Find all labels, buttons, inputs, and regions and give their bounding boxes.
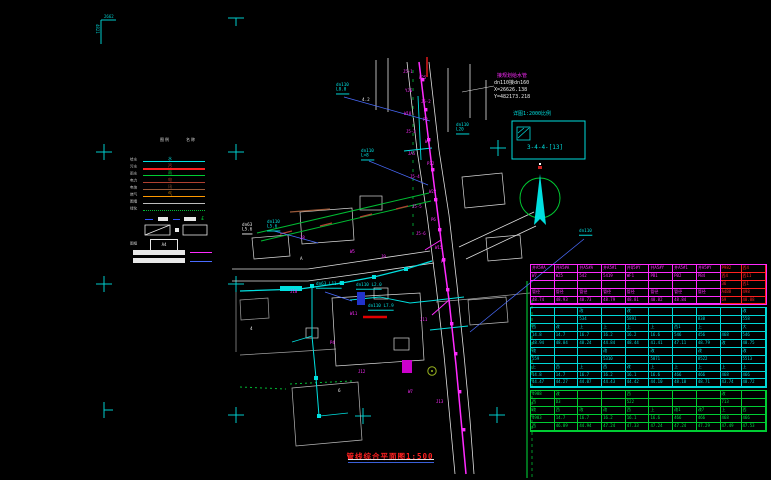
table-cell: 46.89 [555,423,579,431]
node-label: W22 [429,190,436,194]
pipe-label: 4.2 [362,99,370,104]
table-cell: 16.2 [602,372,626,380]
table-cell [602,308,626,316]
table-cell: 西 [555,364,579,372]
table-cell: 西1 [742,281,766,289]
table-cell [649,399,673,407]
table-cell: 井A5#A [531,265,555,273]
table-cell: PB1 [649,273,673,281]
node-label: J9 [381,255,386,259]
node-label: J10 [290,290,297,294]
legend-row-label: 污水 [130,164,137,169]
table-cell [578,391,602,399]
table-cell [555,348,579,356]
node-label: P8 [423,118,428,122]
coordinate-x-note: X=26626.138 [494,87,527,94]
node-label: J5-4 [410,175,420,179]
table-cell: 上 [626,324,650,332]
table-cell: 改 [531,407,555,415]
table-cell: 井A5#Y [697,265,721,273]
table-cell: 西4 [742,265,766,273]
table-cell: 改 [721,391,742,399]
road-bar-2 [133,258,185,263]
table-section-existing: 改改改5345891838558西改上上上上西1上大14.814.716.716… [530,307,767,388]
table-row: 井A5#A井A5#A井A5#A井A5#1井Q5#Y井A5#Y井A5#1井A5#Y… [531,265,766,273]
table-cell: 468 [721,415,742,423]
table-cell: 改 [578,407,602,415]
legend-row-label: 电力 [130,178,137,183]
table-cell: 48.84 [673,297,697,305]
table-cell: 改 [578,308,602,316]
table-cell: 16.1 [626,372,650,380]
corner-coordinate-v: 4821 [95,24,100,34]
table-cell: 16.7 [578,372,602,380]
table-cell [697,297,721,305]
table-cell [721,348,742,356]
table-cell: 4988 [531,391,555,399]
table-cell: 西1 [673,324,697,332]
hydrant-symbol [158,217,168,221]
legend-row-围墙: 围墙 [128,201,228,208]
table-row: 改西改改西上改1改7上西 [531,407,766,415]
legend-row-label: 围墙 [130,199,137,204]
table-cell: 管径 [626,289,650,297]
table-cell: 498 [742,289,766,297]
table-cell: 542 [578,273,602,281]
table-cell: 改 [555,391,579,399]
table-row: 上西上西改上上上上上 [531,364,766,372]
table-cell: W7 [531,273,555,281]
table-cell [531,316,555,324]
table-cell [742,391,766,399]
table-cell [673,399,697,407]
table-cell: 改 [626,364,650,372]
table-cell: 改 [697,348,721,356]
table-cell [578,356,602,364]
table-cell: 48.93 [555,297,579,305]
table-cell: 上 [649,407,673,415]
cad-viewport[interactable]: 2662 4821 接规划给水管 dn110接dn160 X=26626.138… [0,0,771,480]
table-cell: 48.71 [697,379,721,387]
table-cell [721,324,742,332]
table-cell: 48.24 [578,340,602,348]
table-cell: 47.24 [602,423,626,431]
table-cell: 44.94 [578,423,602,431]
table-cell: 48.74 [531,297,555,305]
table-cell: 14.8 [531,332,555,340]
table-cell: 上 [742,364,766,372]
table-cell: 838 [697,316,721,324]
node-label: YJ6 [405,89,412,93]
table-cell [649,308,673,316]
table-cell: 西 [602,364,626,372]
table-cell: 16.1 [626,415,650,423]
node-label: J5-3 [406,130,416,134]
table-cell: 西4 [721,273,742,281]
table-cell [673,281,697,289]
node-label: J11 [420,318,427,322]
table-cell [602,316,626,324]
table-cell: 16.6 [649,372,673,380]
table-row: 44.4744.2744.0744.4344.4244.1048.1048.71… [531,379,766,387]
table-cell: W25 [555,273,579,281]
table-row: W7W255425419WF1PB1PB2PB4西4西11 [531,273,766,281]
table-cell: 西 [531,324,555,332]
legend-row-mark: 水 [168,156,172,162]
table-cell: 48.84 [555,340,579,348]
legend-row-污水: 污水污 [128,166,228,173]
legend-header-2: 名称 [186,137,196,143]
pipe-label: dn110 [579,230,592,236]
table-cell: 井Q5#Y [626,265,650,273]
table-cell: 改 [602,407,626,415]
table-cell: 管径 [649,289,673,297]
table-cell: 井A5#Y [649,265,673,273]
table-cell [626,348,650,356]
table-cell [673,391,697,399]
table-cell: 48.88 [742,297,766,305]
table-cell: 西11 [742,273,766,281]
table-cell: 48.81 [626,297,650,305]
table-cell: 上 [531,364,555,372]
table-cell: 468 [721,332,742,340]
node-label: J5-6 [416,232,426,236]
table-cell: 466 [697,415,721,423]
table-cell [602,281,626,289]
table-cell: 上 [578,324,602,332]
table-cell: 16.7 [578,415,602,423]
road-lines [232,58,536,474]
table-cell: 5871 [649,356,673,364]
table-cell: 466 [673,372,697,380]
table-cell: 改 [742,308,766,316]
table-cell: 558 [742,316,766,324]
corner-coordinate-h: 2662 [104,14,114,19]
legend-row-label: 给水 [130,157,137,162]
table-cell: 16.6 [649,415,673,423]
magenta-sample-line [190,252,212,253]
table-cell: 47.49 [721,423,742,431]
table-cell: 44.43 [602,379,626,387]
title-block: 管线综合平面图1:500 [300,444,480,463]
detail-box [512,121,585,159]
legend-row-line [143,210,205,211]
table-cell: 47.29 [697,423,721,431]
table-cell: 大 [742,324,766,332]
table-cell: 5419 [602,273,626,281]
table-cell: 559 [531,356,555,364]
pipe-label: dn110 L5.6 [267,221,280,231]
table-cell [555,281,579,289]
legend-boxes-row [128,223,228,236]
legend-row-line [143,196,205,197]
table-cell: 井A5#A [555,265,579,273]
table-cell: 改 [531,348,555,356]
table-cell: 48.82 [649,297,673,305]
frame-label: 图框 [130,241,137,246]
legend-header-1: 图例 [160,137,170,143]
table-cell: 上 [697,324,721,332]
node-label: P4 [330,341,335,345]
table-cell: 44.10 [649,379,673,387]
node-label: W7 [408,390,413,394]
node-label: W9 [425,140,430,144]
road-bar-1 [133,250,185,255]
table-row: 48.9448.8448.2444.8448.4441.4147.1148.79… [531,340,766,348]
pipe-label: 6 [338,390,341,395]
legend-row-电信: 电信讯 [128,187,228,194]
table-cell: 48.73 [578,297,602,305]
pipeline-data-table: 井A5#A井A5#A井A5#A井A5#1井Q5#Y井A5#Y井A5#1井A5#Y… [530,264,767,434]
legend-row-绿化: 绿化 [128,208,228,215]
legend-row-mark: 雨 [168,170,172,176]
node-label: P7 [441,260,446,264]
planning-note: 接规划给水管 [497,73,527,80]
table-cell: 14.7 [555,415,579,423]
table-cell [602,391,626,399]
table-row: 5595310587185225513 [531,356,766,364]
table-cell: 5891 [626,316,650,324]
table-cell: 466 [697,372,721,380]
table-cell: 西 [531,423,555,431]
table-cell: 48.72 [742,379,766,387]
table-cell: 48.10 [673,379,697,387]
table-cell: 西 [626,407,650,415]
table-cell: 管径 [555,289,579,297]
table-row: 西46.8944.9447.2447.3347.2447.2447.2947.4… [531,423,766,431]
table-cell: 522 [626,399,650,407]
table-cell: 14.8 [531,372,555,380]
table-cell: 8522 [697,356,721,364]
pipe-label: dn63 L11.5 [316,283,342,289]
table-cell [578,399,602,407]
table-cell [721,316,742,324]
table-row: 48.7448.9348.7348.7948.8148.8248.846948.… [531,297,766,305]
node-label: W18 [404,112,411,116]
table-cell: 16.6 [649,332,673,340]
table-cell: 36 [721,281,742,289]
table-cell: 改 [649,348,673,356]
legend-row-mark: 气 [168,191,172,197]
pipe-label: dn63 L5.6 [242,224,252,234]
node-label: W25 [419,76,426,80]
node-label: W11 [350,312,357,316]
table-cell: 改 [742,348,766,356]
detail-caption: 详图1:2000比例 [513,111,551,118]
table-row: 管径管径管径管径管径管径管径管径A4B8498 [531,289,766,297]
table-cell: 44.84 [602,340,626,348]
table-cell: 546 [673,332,697,340]
table-cell [555,316,579,324]
table-cell [742,399,766,407]
table-cell: 井A5#1 [602,265,626,273]
table-cell: 47.53 [742,423,766,431]
legend-row-电力: 电力电 [128,180,228,187]
table-row: 36西1 [531,281,766,289]
table-cell [555,308,579,316]
table-cell: 改 [602,348,626,356]
legend-row-line [143,175,205,176]
valve-symbol-2 [173,219,180,220]
pipe-label: dn110 L7.9 [368,305,394,311]
table-cell [673,316,697,324]
table-cell [578,281,602,289]
utility-hatches [280,206,408,234]
table-cell: 468 [721,372,742,380]
table-cell: PB4 [697,273,721,281]
table-cell: 48.79 [697,340,721,348]
table-cell [602,399,626,407]
table-cell: 改1 [673,407,697,415]
table-cell: 48.75 [742,340,766,348]
table-cell: 西 [531,399,555,407]
table-cell: 上 [602,324,626,332]
table-cell: 16.2 [602,332,626,340]
table-cell: 5513 [742,356,766,364]
table-row: 西D3522713 [531,399,766,407]
pipe-label: dn110 L20 [456,124,469,134]
table-cell: 43.74 [721,379,742,387]
table-cell: 上 [697,364,721,372]
node-label: P6 [431,218,436,222]
pipe-label: dn110 L8.0 [336,84,349,94]
table-cell: 41.41 [649,340,673,348]
node-label: JA5 [408,152,415,156]
table-row: 4988改西改 [531,391,766,399]
table-cell: 48.79 [602,297,626,305]
table-cell [578,348,602,356]
tree-symbol: £ [201,216,204,222]
title-underline-2 [348,462,434,463]
pipe-size-note: dn110接dn160 [494,80,529,87]
table-cell: 466 [742,372,766,380]
legend-row-雨水: 雨水雨 [128,173,228,180]
legend-row-mark: 电 [168,177,172,183]
detail-ref-label: 3-4-4-[13] [527,145,563,152]
title-underline-1 [348,459,434,460]
table-row: 改改改改改 [531,348,766,356]
table-row: 西改上上上上西1上大 [531,324,766,332]
legend-row-line [143,161,205,162]
node-label: J5-1 [403,70,413,74]
legend-row-label: 雨水 [130,171,137,176]
table-cell [673,356,697,364]
table-cell: A4B8 [721,289,742,297]
table-cell: 534 [578,316,602,324]
valve-symbol [145,219,153,220]
node-label: J12 [358,370,365,374]
table-cell: 466 [742,415,766,423]
table-section-ground: 4988改西改西D3522713改西改改西上改1改7上西498314.716.7… [530,390,767,431]
legend-row-line [143,182,205,183]
legend-row-mark: 讯 [168,184,172,190]
node-label: J5-2 [421,100,431,104]
table-cell [555,356,579,364]
legend-row-line [143,168,205,170]
table-cell: 44.07 [578,379,602,387]
legend-row-line [143,189,205,190]
table-cell: PB2 [673,273,697,281]
table-cell: 上 [578,364,602,372]
blue-sample-line [190,261,212,262]
pipe-label: 4 [250,328,253,333]
coordinate-y-note: Y=482173.218 [494,94,530,101]
table-cell: D3 [555,399,579,407]
legend-row-mark: 污 [168,163,172,169]
table-cell: 西 [555,407,579,415]
table-cell: 西 [742,407,766,415]
table-row: 498314.716.716.216.116.6466466468466 [531,415,766,423]
table-cell: 井A5#A [578,265,602,273]
table-cell: 14.7 [555,332,579,340]
legend-row-label: 燃气 [130,192,137,197]
table-cell: 改7 [697,407,721,415]
table-cell: 456 [697,332,721,340]
table-cell: 546 [742,332,766,340]
chamber-symbol [184,217,196,221]
node-label: W15 [435,246,442,250]
table-cell [721,308,742,316]
table-cell: 改 [555,324,579,332]
table-cell: 69 [721,297,742,305]
legend-row-label: 电信 [130,185,137,190]
table-cell [531,281,555,289]
table-row: 14.814.716.716.216.116.6466466468466 [531,372,766,380]
table-cell [721,356,742,364]
node-label: W5 [350,250,355,254]
table-cell: 48.94 [531,340,555,348]
table-cell: 16.2 [626,332,650,340]
pipe-label: dn110 L2.0 [356,284,382,290]
table-cell: 管径 [578,289,602,297]
table-cell: 44.42 [626,379,650,387]
table-cell [673,308,697,316]
table-cell: P982 [721,265,742,273]
table-row: 14.814.716.716.216.216.6546456468546 [531,332,766,340]
table-cell [673,348,697,356]
table-cell: 5310 [602,356,626,364]
table-cell: 466 [673,415,697,423]
table-cell: 47.24 [673,423,697,431]
table-cell [649,281,673,289]
table-cell [649,316,673,324]
table-cell: 改 [626,308,650,316]
table-cell: WF1 [626,273,650,281]
table-cell: 上 [649,364,673,372]
table-cell: 713 [721,399,742,407]
table-cell: 改 [721,340,742,348]
table-cell [649,391,673,399]
table-cell: 16.2 [602,415,626,423]
table-cell: 管径 [697,289,721,297]
table-cell [626,281,650,289]
table-row: 5345891838558 [531,316,766,324]
node-label: P12 [427,162,434,166]
table-row: 改改改 [531,308,766,316]
table-cell [697,308,721,316]
table-cell [697,281,721,289]
table-cell: 16.7 [578,332,602,340]
table-cell: 47.24 [649,423,673,431]
pipe-label: A [300,258,303,263]
table-cell [697,399,721,407]
table-cell: 井A5#1 [673,265,697,273]
table-cell: 44.47 [531,379,555,387]
table-cell: 47.11 [673,340,697,348]
table-cell: 47.33 [626,423,650,431]
table-cell [531,308,555,316]
table-cell [626,356,650,364]
